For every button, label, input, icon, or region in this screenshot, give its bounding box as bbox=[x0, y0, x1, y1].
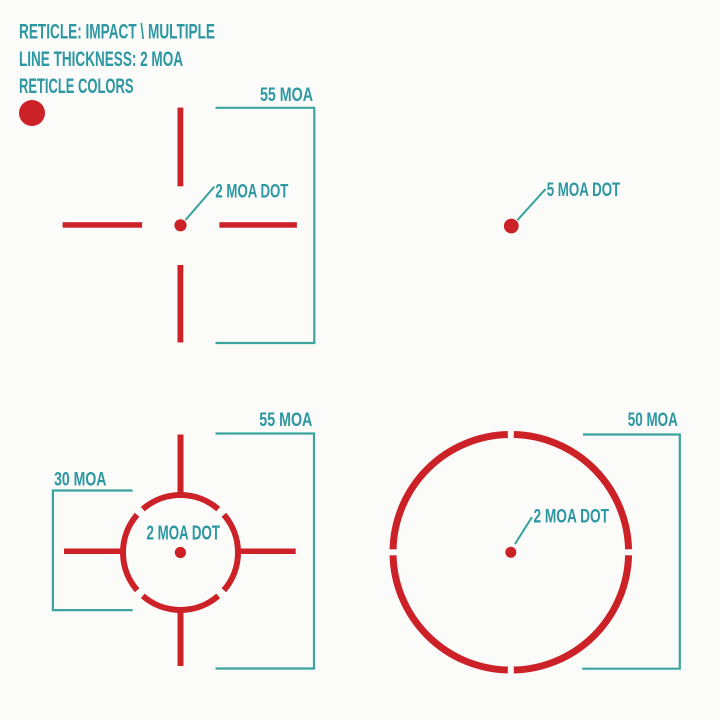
svg-text:55 MOA: 55 MOA bbox=[259, 410, 312, 431]
svg-text:RETICLE COLORS: RETICLE COLORS bbox=[19, 74, 134, 98]
svg-text:30 MOA: 30 MOA bbox=[54, 469, 106, 490]
svg-text:55 MOA: 55 MOA bbox=[260, 85, 313, 106]
svg-text:2 MOA DOT: 2 MOA DOT bbox=[215, 181, 288, 202]
svg-text:5 MOA DOT: 5 MOA DOT bbox=[547, 180, 621, 201]
svg-text:LINE THICKNESS: 2 MOA: LINE THICKNESS: 2 MOA bbox=[19, 47, 183, 71]
svg-text:2 MOA DOT: 2 MOA DOT bbox=[534, 507, 610, 528]
svg-text:RETICLE: IMPACT \ MULTIPLE: RETICLE: IMPACT \ MULTIPLE bbox=[19, 20, 215, 44]
svg-text:50 MOA: 50 MOA bbox=[628, 410, 678, 431]
svg-text:2 MOA DOT: 2 MOA DOT bbox=[147, 523, 221, 545]
